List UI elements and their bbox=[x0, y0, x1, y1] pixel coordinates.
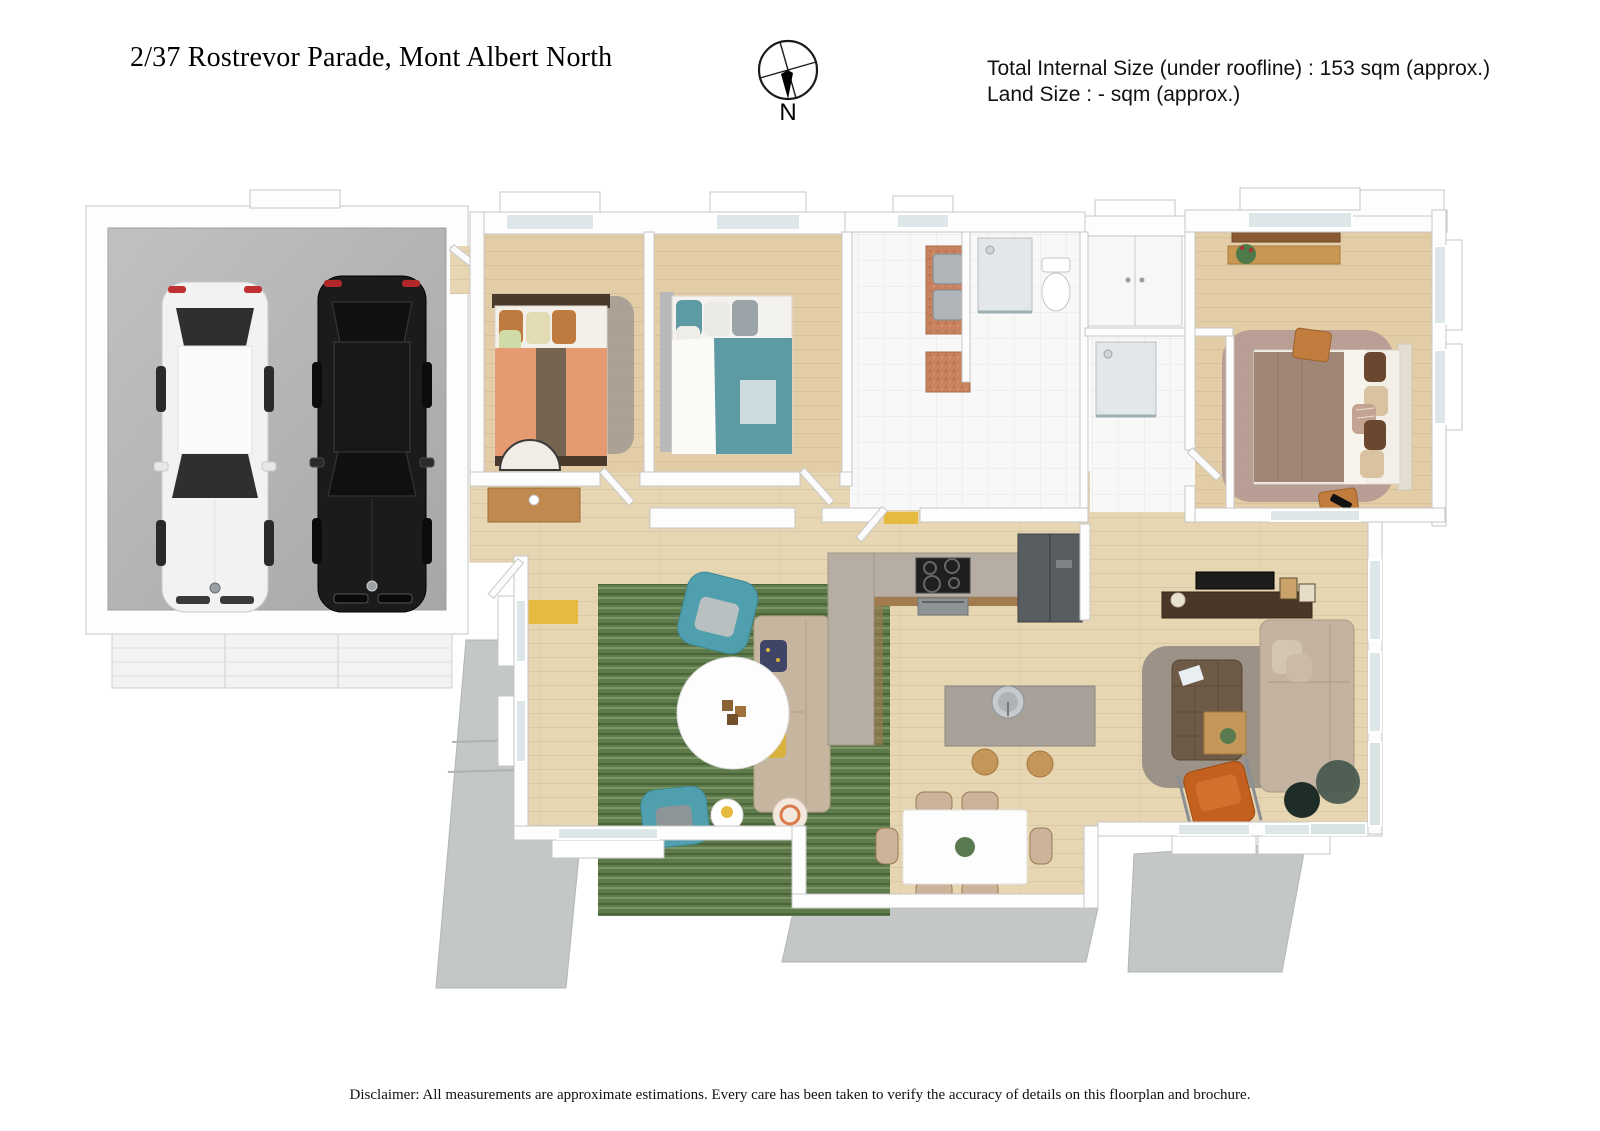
floorplan-render bbox=[0, 0, 1600, 1131]
hall-mat bbox=[884, 512, 918, 524]
window-living-bottom bbox=[552, 828, 664, 858]
fridge bbox=[1018, 534, 1082, 622]
bedroom2-bed bbox=[492, 294, 610, 466]
rear-paving bbox=[782, 908, 1098, 962]
bedroom3-bed bbox=[660, 292, 792, 454]
black-car bbox=[310, 276, 434, 612]
coffee-table bbox=[677, 657, 789, 769]
window-family-bottom bbox=[1172, 824, 1330, 854]
tv bbox=[1196, 572, 1274, 589]
master-bed bbox=[1254, 344, 1412, 490]
floorplan-page: 2/37 Rostrevor Parade, Mont Albert North… bbox=[0, 0, 1600, 1131]
stool bbox=[972, 749, 998, 775]
window-linen bbox=[1095, 200, 1175, 216]
window-master-bottom bbox=[1270, 510, 1360, 521]
cooktop-oven bbox=[916, 558, 970, 615]
garage bbox=[86, 190, 489, 688]
shower bbox=[978, 238, 1032, 312]
table-plant bbox=[955, 837, 975, 857]
disclaimer: Disclaimer: All measurements are approxi… bbox=[0, 1087, 1600, 1104]
patio bbox=[1128, 842, 1306, 972]
toilet bbox=[1042, 258, 1070, 311]
white-car bbox=[154, 282, 276, 612]
window-bed3 bbox=[710, 192, 806, 230]
plant-pot bbox=[1284, 782, 1320, 818]
picture-frame bbox=[1280, 578, 1297, 599]
ottoman-table bbox=[1172, 660, 1246, 760]
linen-cupboard bbox=[1088, 236, 1182, 326]
stool bbox=[1027, 751, 1053, 777]
entry-mat bbox=[522, 600, 578, 624]
window-bed2 bbox=[500, 192, 600, 230]
bedside-cube bbox=[1292, 328, 1332, 363]
picture-frame bbox=[1299, 584, 1315, 602]
dining-chair bbox=[1030, 828, 1052, 864]
plant-pot bbox=[1316, 760, 1360, 804]
bedroom-3 bbox=[652, 232, 842, 472]
garage-door bbox=[112, 634, 452, 688]
window-laundry bbox=[893, 196, 953, 228]
bedroom-2 bbox=[484, 232, 644, 472]
window-master-top bbox=[1240, 188, 1360, 228]
dining-chair bbox=[876, 828, 898, 864]
